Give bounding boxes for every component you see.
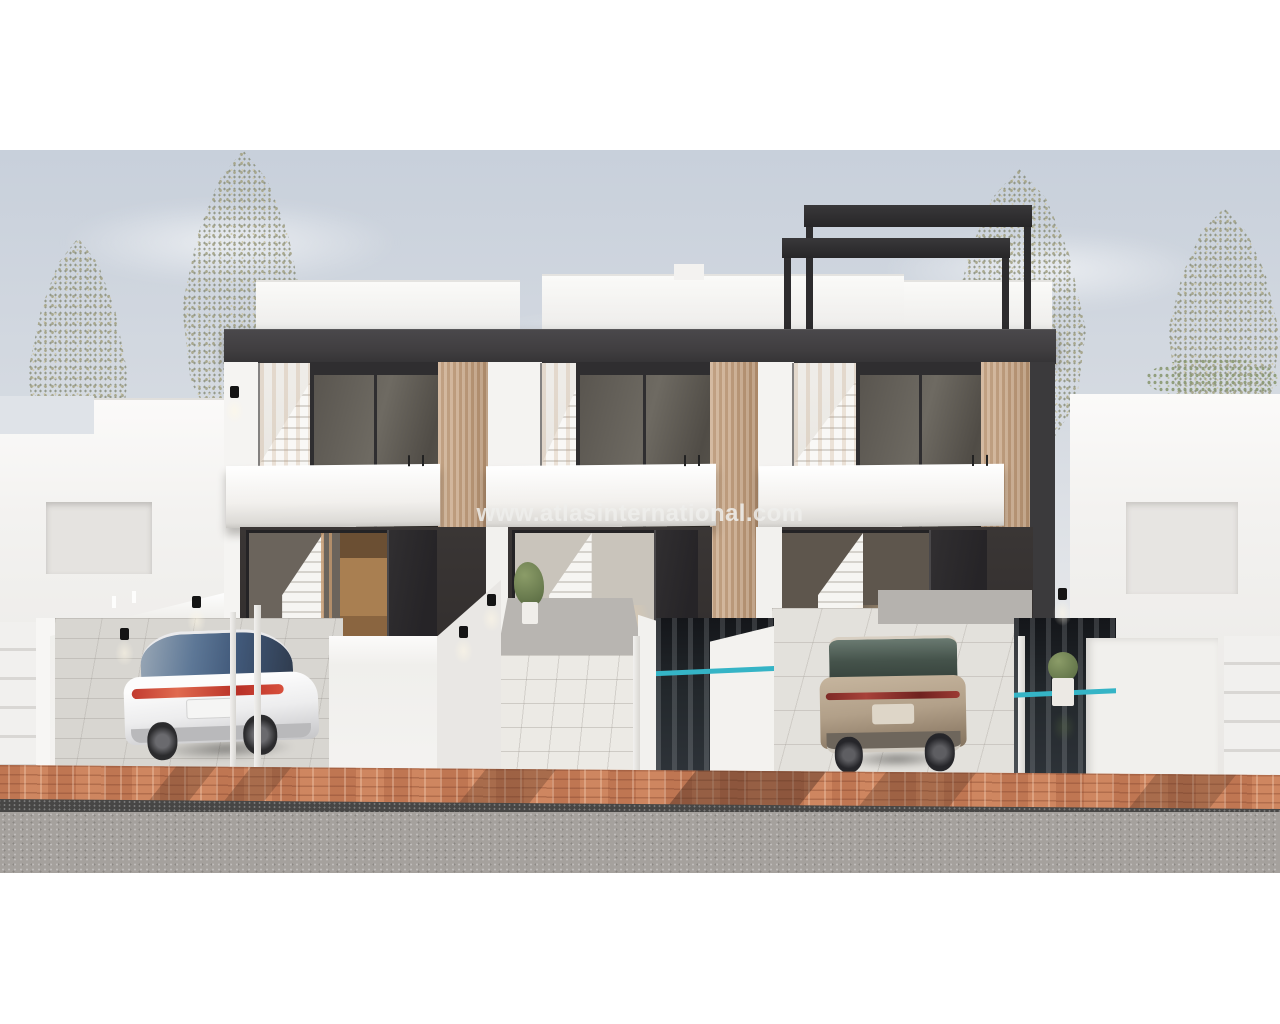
glass-clamp <box>684 455 686 466</box>
right-garage-door <box>1224 636 1280 778</box>
plant-pot <box>1052 678 1074 706</box>
glass-clamp <box>422 455 424 466</box>
privacy-wall-right <box>1086 638 1218 788</box>
wall-post <box>112 596 116 608</box>
penthouse-rooflight <box>674 264 704 280</box>
wall-post <box>132 591 136 603</box>
pergola-leg <box>784 258 791 334</box>
pergola-leg <box>1002 258 1009 334</box>
pergola-leg <box>1024 227 1031 333</box>
sedan-wheel <box>147 722 178 761</box>
plant-reflection <box>1052 712 1076 742</box>
dark-roof-fascia <box>224 329 1056 364</box>
terrace-plant <box>514 562 544 606</box>
wall-lamp <box>459 626 468 638</box>
glass-clamp <box>698 455 700 466</box>
sidewalk-shadow <box>858 772 976 808</box>
privacy-wall-front <box>329 636 439 782</box>
suv-license-plate <box>872 704 914 725</box>
watermark-text: www.atlasinternational.com <box>0 500 1280 528</box>
glass-fence-post <box>633 636 640 783</box>
tan-suv-car <box>819 635 973 780</box>
wall-lamp <box>120 628 129 640</box>
glass-clamp <box>986 455 988 466</box>
pool-coping <box>638 615 658 787</box>
penthouse-box-center <box>542 274 904 336</box>
sedan-license-plate <box>186 698 235 720</box>
carport-post <box>230 612 236 780</box>
sidewalk-shadow <box>458 769 556 805</box>
plant-pot <box>522 602 538 624</box>
wall-lamp <box>487 594 496 606</box>
asphalt-road <box>0 812 1280 873</box>
left-garage-door <box>0 622 40 777</box>
suv-wheel <box>835 737 864 773</box>
pergola-front-beam <box>782 238 1010 258</box>
suv-wheel <box>924 733 955 772</box>
property-photo-frame: www.atlasinternational.com <box>0 0 1280 1024</box>
wall-lamp <box>230 386 239 398</box>
architectural-render-scene: www.atlasinternational.com <box>0 150 1280 873</box>
glass-clamp <box>408 455 410 466</box>
pergola-back-beam <box>804 205 1032 227</box>
white-sedan-car <box>122 625 327 776</box>
glass-clamp <box>972 455 974 466</box>
sidewalk-shadow <box>1128 774 1236 810</box>
sidewalk-shadow <box>223 767 291 803</box>
carport-post <box>254 605 261 783</box>
sidewalk-shadow <box>148 766 216 802</box>
penthouse-box-left <box>256 280 520 336</box>
privacy-wall-pool <box>710 626 774 782</box>
terrace-slab-unit3 <box>878 590 1032 624</box>
left-neighbour-roof-setback <box>0 396 94 434</box>
wall-lamp <box>192 596 201 608</box>
wall-lamp <box>1058 588 1067 600</box>
sidewalk-shadow <box>668 770 826 807</box>
